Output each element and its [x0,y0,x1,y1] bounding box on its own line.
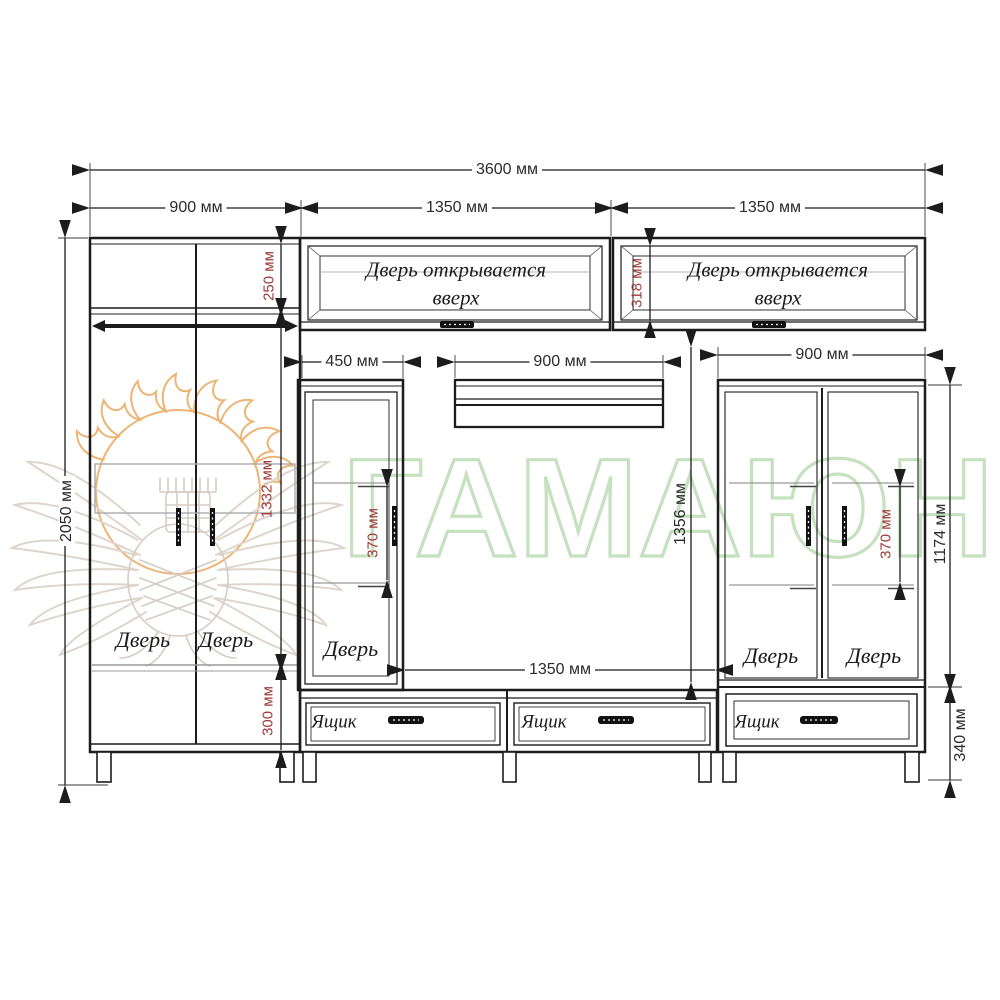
dim-right-cab-width-label: 900 мм [791,347,852,363]
flip-door-note-line2: вверх [366,284,546,312]
dim-flip-door-label: 318 мм [630,258,645,308]
right-door-label-1: Дверь [744,645,798,667]
dim-middle-width-label: 1350 мм [525,662,595,678]
wall-shelf [455,380,663,427]
drawer-label-1: Ящик [311,713,356,732]
dim-glass-shelf-label: 370 мм [366,508,381,558]
flip-door-note-right: Дверь открывается вверх [688,256,868,313]
dim-drawer-height-label: 340 мм [953,708,969,761]
middle-drawer-unit [300,690,717,752]
dim-left-width-label: 900 мм [165,200,226,216]
brand-watermark-text: ГАМАЮН [342,429,994,586]
dim-right-shelf-label: 370 мм [879,509,894,559]
dim-glass-width-label: 450 мм [321,354,382,370]
glass-door-label: Дверь [324,638,378,660]
dim-left-door-label: 1332 мм [260,460,275,518]
flip-door-note-line1: Дверь открывается [688,256,868,284]
drawer-label-3: Ящик [734,713,779,732]
dim-left-bottom-label: 300 мм [261,686,276,736]
dim-right-width-label: 1350 мм [735,200,805,216]
flip-door-note-line1: Дверь открывается [366,256,546,284]
left-door-label-2: Дверь [199,629,253,651]
dim-right-door-height-label: 1174 мм [933,504,949,565]
brand-watermark: ГАМАЮН [342,429,994,586]
cabinet-legs [97,752,919,782]
flip-door-note-middle: Дверь открывается вверх [366,256,546,313]
left-door-label-1: Дверь [116,629,170,651]
right-door-label-2: Дверь [847,645,901,667]
dim-shelf-width-label: 900 мм [529,354,590,370]
dim-left-top-label: 250 мм [262,251,277,301]
drawing-canvas: ГАМАЮН [0,0,1000,1000]
drawer-label-2: Ящик [521,713,566,732]
dim-total-width-label: 3600 мм [472,162,542,178]
flip-door-note-line2: вверх [688,284,868,312]
dim-total-height-label: 2050 мм [59,476,75,546]
dim-mid-width-label: 1350 мм [422,200,492,216]
dim-middle-height-label: 1356 мм [673,483,689,545]
furniture-technical-drawing: ГАМАЮН [0,0,1000,1000]
